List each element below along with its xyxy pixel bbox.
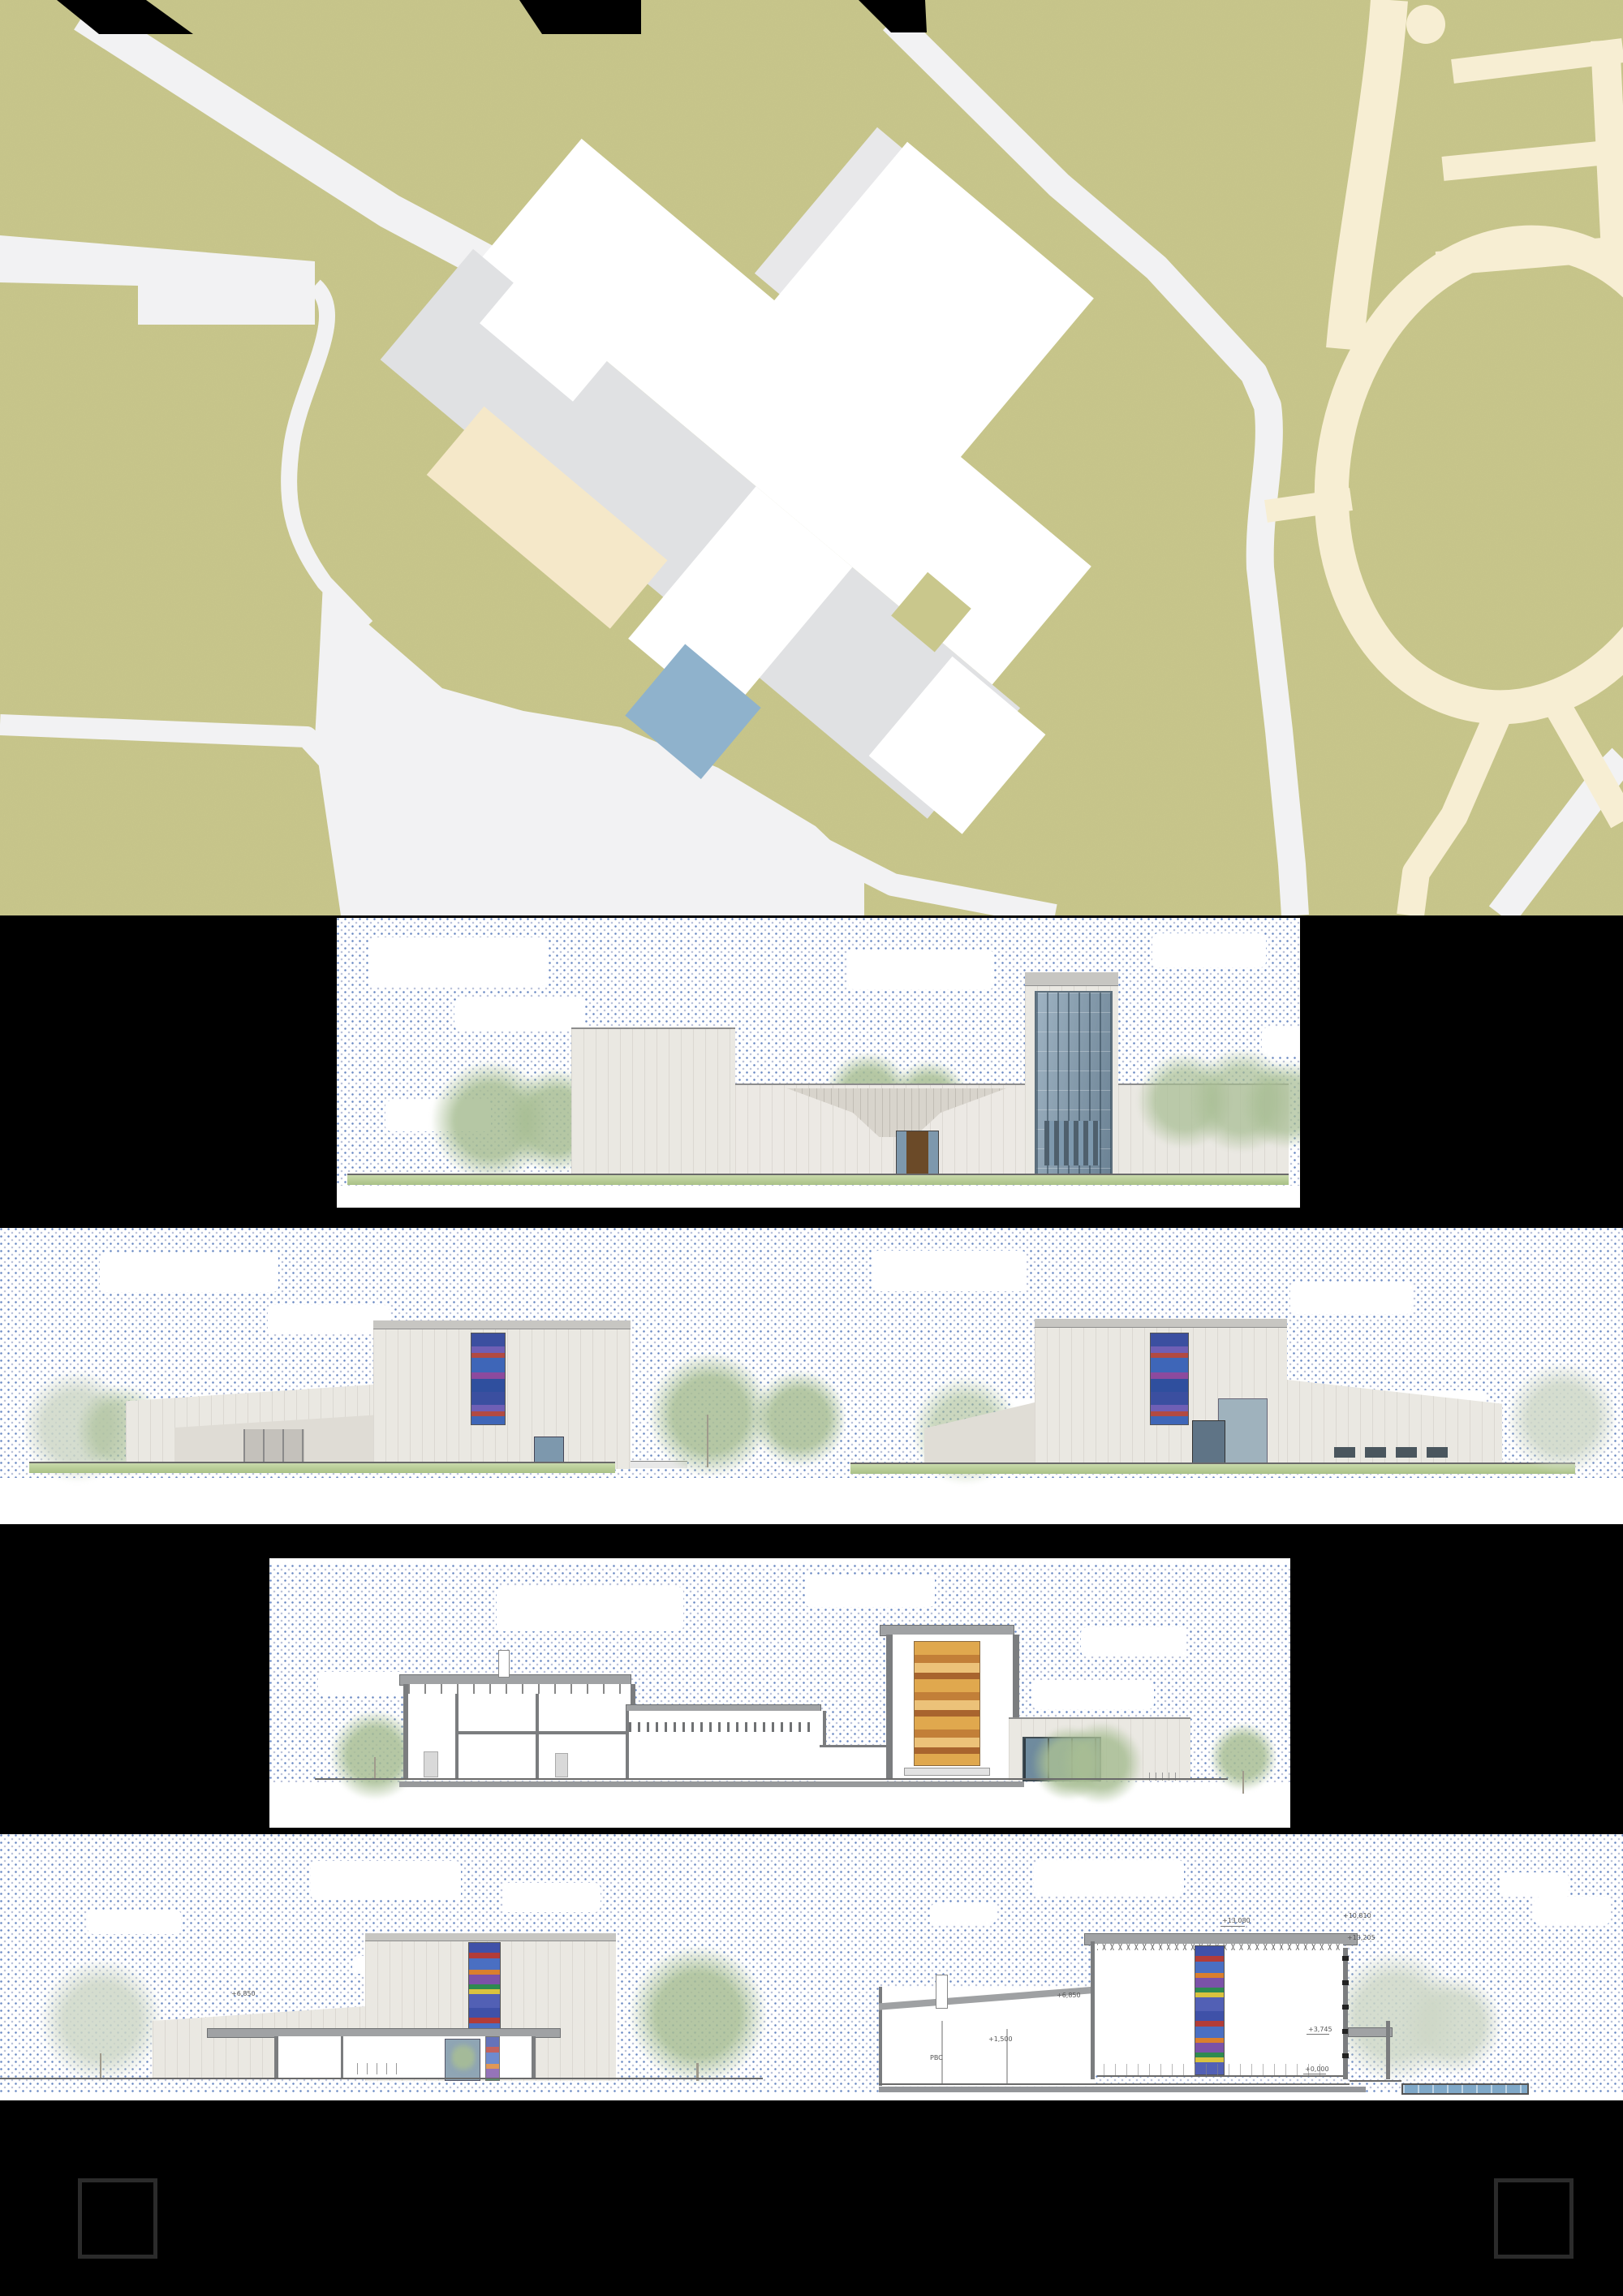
tree [1061,1721,1142,1806]
cloud [931,1903,996,1924]
tree [649,1350,771,1480]
entrance-elevation-panel [337,918,1300,1208]
base-window [1365,1447,1386,1458]
furniture [357,2063,406,2074]
road-end-cap [1406,5,1445,44]
leader-line [1303,2074,1326,2074]
level-annotation: +13,205 [1347,1935,1375,1941]
cloud [318,1672,407,1696]
cloud [1290,1282,1412,1314]
road-rung-right [1605,41,1617,268]
leader-line [1307,2034,1329,2035]
side-elevations-panel [0,1228,1623,1524]
base-window [1334,1447,1355,1458]
reflecting-pool-section [1401,2083,1529,2095]
level-annotation: +1,500 [988,2036,1013,2043]
cloud [311,1861,461,1900]
foundation [879,2087,1366,2092]
stained-glass-strip [468,1942,501,2033]
ground-line [0,2078,763,2079]
footer-right-mark [1494,2178,1573,2259]
cloud [1534,1897,1611,1924]
footer-left-mark [78,2178,157,2259]
site-plan [0,0,1623,915]
ground-grass [347,1175,1289,1185]
tower-cap [365,1933,616,1941]
cloud [100,1253,278,1292]
hall-floor-line [1097,2075,1343,2077]
base-window [1396,1447,1417,1458]
longitudinal-section-panel [269,1558,1290,1828]
level-annotation: +6,850 [1057,1992,1081,1999]
cloud [805,1574,935,1607]
tree-trunk [1242,1771,1244,1794]
level-annotation: +3,745 [1308,2027,1332,2033]
cross-sections-panel: +6,850 PBC +13,080 +10,810 +13,205 +6,85… [0,1834,1623,2100]
annex-wall [1386,2021,1390,2079]
ground-line [315,1778,1228,1780]
ground-grass [850,1464,1575,1474]
stained-glass-strip [471,1333,506,1425]
pews [1104,2064,1331,2075]
tree-trunk [374,1757,376,1779]
stained-glass-lower [485,2036,500,2081]
cloud [1500,1872,1569,1897]
colonnade [629,1722,816,1732]
level-annotation: +10,810 [1343,1913,1371,1919]
stained-glass-column [1195,1945,1225,2075]
ground-line [879,2083,1350,2085]
cloud [503,1883,601,1912]
flue [498,1650,510,1678]
flue [936,1975,948,2009]
partition-wall [536,1694,539,1779]
leader-line [1220,1926,1245,1927]
room-label: PBC [930,2055,943,2061]
cloud [1081,1627,1186,1656]
tower-cap [373,1320,631,1329]
floor-slab [458,1731,626,1734]
tree [755,1366,844,1471]
east-door [1192,1420,1225,1467]
stained-glass-strip [1150,1333,1189,1425]
cloud [497,1587,683,1631]
wall-ties [1342,1956,1349,2061]
tree [41,1956,162,2086]
indoor-tree [451,2040,476,2075]
level-annotation: +6,850 [231,1991,256,1997]
ground-grass [29,1463,615,1473]
level-annotation: +13,080 [1222,1918,1251,1924]
cloud [1034,1860,1184,1896]
cloud [872,1251,1027,1291]
tower-cap [1035,1319,1287,1328]
foundation [399,1781,1024,1787]
tree-trunk [707,1415,708,1467]
tower-louvres [1044,1121,1100,1165]
base-window [1427,1447,1448,1458]
link-corridor [820,1745,886,1781]
cloud [1152,933,1266,967]
partition-wall [455,1694,458,1779]
tree-trunk [100,2053,101,2079]
partition-wall [341,2036,343,2079]
tower-cap [1025,972,1118,986]
cloud [268,1305,390,1334]
tree [1404,1972,1501,2078]
presentation-board: +6,850 PBC +13,080 +10,810 +13,205 +6,85… [0,0,1623,2296]
cloister-interior [626,1711,826,1779]
fixture [424,1751,438,1777]
cloud [454,998,584,1031]
footer-band [0,2100,1623,2296]
hall-left-wall [1091,1941,1095,2079]
tree [1509,1358,1615,1480]
cloud [1262,1027,1300,1057]
clerestory [408,1684,621,1694]
tall-window [1218,1398,1268,1467]
fixture [555,1753,568,1777]
cloud [88,1910,181,1934]
ground-line [1350,2080,1401,2082]
level-annotation: +0,000 [1305,2066,1329,2073]
amber-glass-wall [914,1641,980,1766]
altar-platform [904,1768,990,1776]
cloud [1032,1680,1154,1709]
left-wing [571,1027,735,1185]
cloud [848,950,994,989]
partition-wall [941,2021,943,2083]
cloud [369,937,548,986]
